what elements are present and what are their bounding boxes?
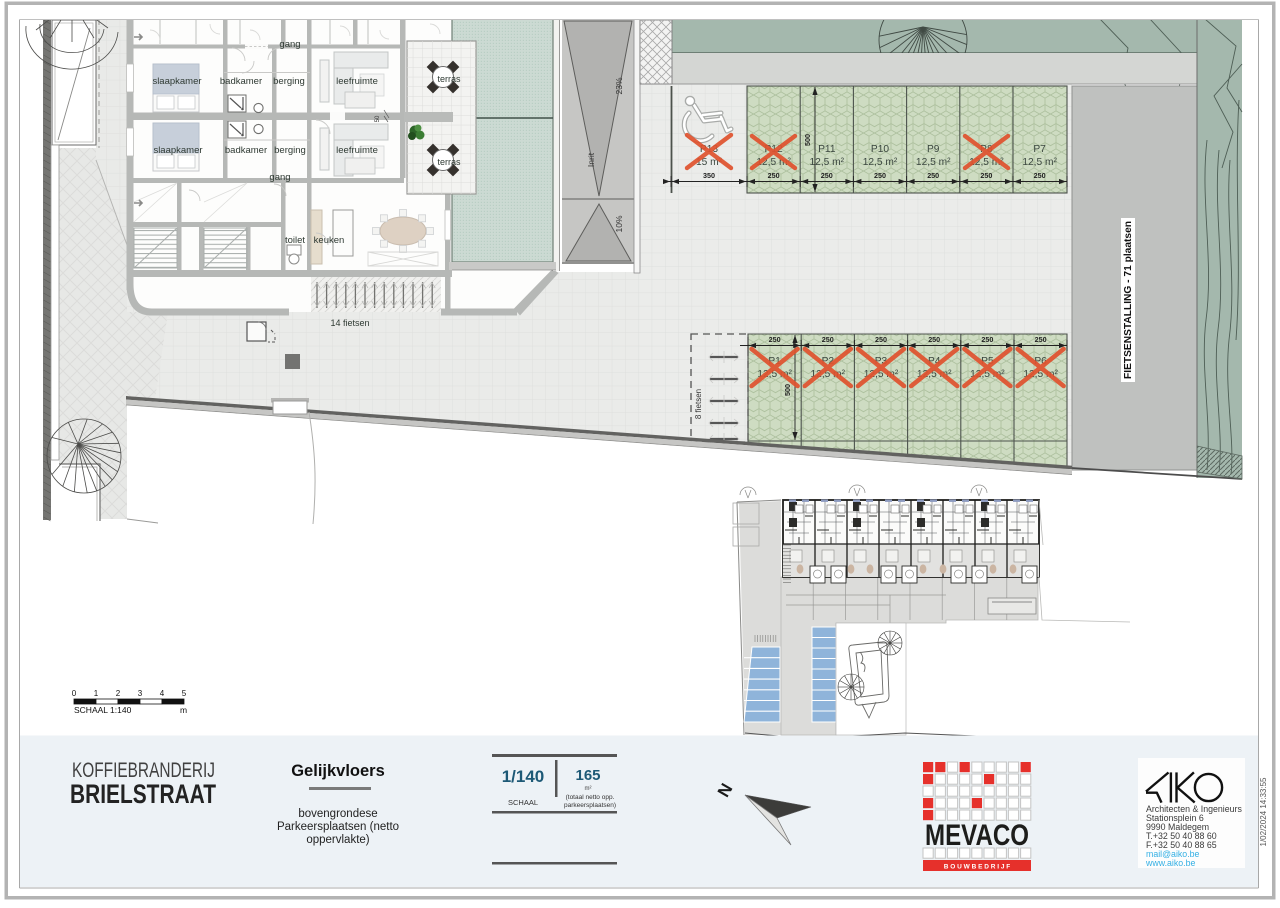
- svg-text:FIETSENSTALLING - 71 plaatsen: FIETSENSTALLING - 71 plaatsen: [1122, 221, 1134, 379]
- svg-text:3: 3: [138, 689, 143, 698]
- svg-text:165: 165: [575, 767, 600, 784]
- svg-text:P7: P7: [1033, 144, 1046, 155]
- svg-text:23%: 23%: [614, 77, 624, 94]
- svg-text:terras: terras: [437, 74, 461, 84]
- svg-text:m: m: [180, 705, 187, 715]
- svg-text:500: 500: [783, 384, 792, 396]
- svg-text:SCHAAL: SCHAAL: [508, 798, 538, 807]
- svg-text:badkamer: badkamer: [225, 145, 267, 156]
- svg-text:BRIELSTRAAT: BRIELSTRAAT: [70, 779, 216, 809]
- svg-text:500: 500: [803, 134, 812, 146]
- svg-text:250: 250: [981, 335, 993, 344]
- svg-text:250: 250: [980, 171, 992, 180]
- svg-text:parkeersplaatsen): parkeersplaatsen): [564, 802, 616, 809]
- svg-text:berging: berging: [274, 145, 306, 156]
- svg-text:bovengrondese: bovengrondese: [298, 808, 377, 820]
- svg-text:1/140: 1/140: [502, 767, 545, 786]
- svg-text:P11: P11: [818, 144, 836, 155]
- svg-text:slaapkamer: slaapkamer: [152, 76, 201, 87]
- svg-text:gang: gang: [279, 39, 300, 50]
- svg-text:250: 250: [822, 335, 834, 344]
- svg-text:8 fietsen: 8 fietsen: [694, 389, 703, 419]
- svg-text:250: 250: [927, 171, 939, 180]
- svg-text:SCHAAL 1:140: SCHAAL 1:140: [74, 705, 132, 715]
- svg-text:4: 4: [160, 689, 165, 698]
- svg-text:12,5 m²: 12,5 m²: [1022, 157, 1057, 168]
- svg-text:12,5 m²: 12,5 m²: [863, 157, 898, 168]
- svg-text:www.aiko.be: www.aiko.be: [1145, 858, 1195, 868]
- svg-text:P9: P9: [927, 144, 940, 155]
- svg-text:2: 2: [116, 689, 121, 698]
- svg-text:B O U W B E D R I J F: B O U W B E D R I J F: [944, 864, 1010, 871]
- svg-text:250: 250: [874, 171, 886, 180]
- svg-text:0: 0: [72, 689, 77, 698]
- svg-text:leefruimte: leefruimte: [336, 145, 378, 156]
- svg-text:Inrit: Inrit: [586, 152, 596, 167]
- svg-text:250: 250: [821, 171, 833, 180]
- svg-text:berging: berging: [273, 76, 305, 87]
- svg-text:14 fietsen: 14 fietsen: [330, 318, 369, 328]
- svg-text:oppervlakte): oppervlakte): [306, 834, 369, 846]
- svg-text:Gelijkvloers: Gelijkvloers: [291, 762, 385, 780]
- svg-text:12,5 m²: 12,5 m²: [916, 157, 951, 168]
- svg-text:terras: terras: [437, 157, 461, 167]
- svg-text:m²: m²: [585, 786, 592, 792]
- svg-text:1: 1: [94, 689, 99, 698]
- svg-text:350: 350: [703, 171, 715, 180]
- svg-text:MEVACO: MEVACO: [925, 819, 1029, 852]
- svg-text:toilet: toilet: [285, 235, 305, 246]
- svg-text:250: 250: [768, 171, 780, 180]
- svg-text:250: 250: [1034, 171, 1046, 180]
- svg-text:gang: gang: [269, 172, 290, 183]
- svg-text:slaapkamer: slaapkamer: [153, 145, 202, 156]
- svg-text:10%: 10%: [614, 215, 624, 232]
- svg-text:50: 50: [375, 115, 381, 122]
- svg-text:keuken: keuken: [314, 235, 345, 246]
- svg-text:250: 250: [875, 335, 887, 344]
- svg-text:P10: P10: [871, 144, 889, 155]
- svg-text:(totaal netto opp.: (totaal netto opp.: [566, 794, 615, 801]
- svg-text:250: 250: [769, 335, 781, 344]
- svg-text:5: 5: [182, 689, 187, 698]
- svg-text:1/02/2024 14:33:55: 1/02/2024 14:33:55: [1259, 777, 1268, 847]
- svg-text:badkamer: badkamer: [220, 76, 262, 87]
- svg-text:Parkeersplaatsen (netto: Parkeersplaatsen (netto: [277, 821, 399, 833]
- svg-text:250: 250: [928, 335, 940, 344]
- svg-text:250: 250: [1035, 335, 1047, 344]
- svg-text:leefruimte: leefruimte: [336, 76, 378, 87]
